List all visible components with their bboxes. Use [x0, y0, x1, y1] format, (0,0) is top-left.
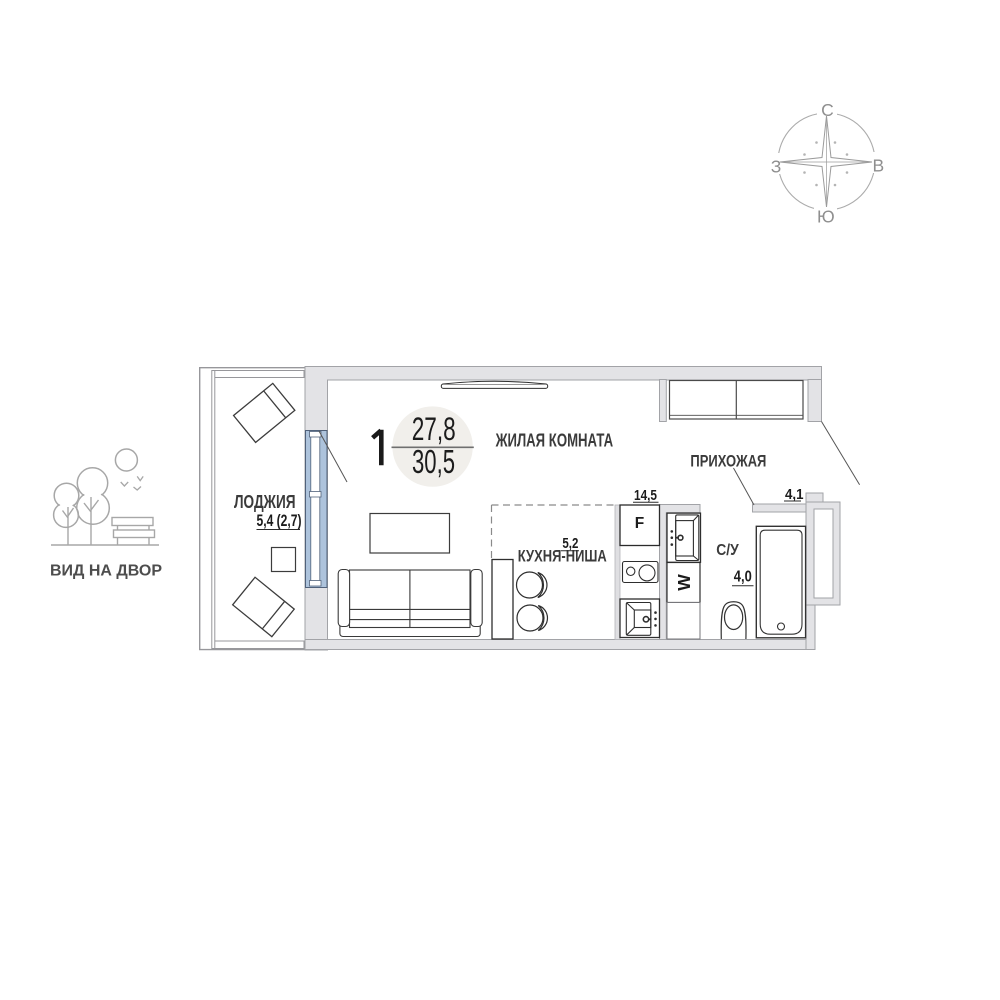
- svg-text:С/У: С/У: [716, 542, 739, 559]
- svg-text:З: З: [771, 157, 782, 177]
- svg-text:W: W: [674, 574, 694, 591]
- svg-text:ЖИЛАЯ КОМНАТА: ЖИЛАЯ КОМНАТА: [495, 431, 613, 451]
- svg-text:ВИД НА ДВОР: ВИД НА ДВОР: [50, 563, 162, 580]
- svg-text:Ю: Ю: [817, 207, 835, 227]
- svg-text:С: С: [821, 100, 834, 120]
- svg-text:27,8: 27,8: [412, 411, 456, 447]
- svg-text:4,1: 4,1: [785, 486, 804, 503]
- svg-text:5,2: 5,2: [562, 535, 578, 552]
- svg-text:5,4 (2,7): 5,4 (2,7): [257, 512, 302, 530]
- svg-text:14,5: 14,5: [634, 488, 657, 504]
- svg-text:4,0: 4,0: [734, 569, 752, 586]
- svg-text:ЛОДЖИЯ: ЛОДЖИЯ: [234, 491, 296, 512]
- svg-text:В: В: [873, 156, 885, 176]
- svg-text:ПРИХОЖАЯ: ПРИХОЖАЯ: [690, 453, 766, 471]
- svg-text:30,5: 30,5: [412, 443, 455, 480]
- svg-text:F: F: [635, 515, 644, 532]
